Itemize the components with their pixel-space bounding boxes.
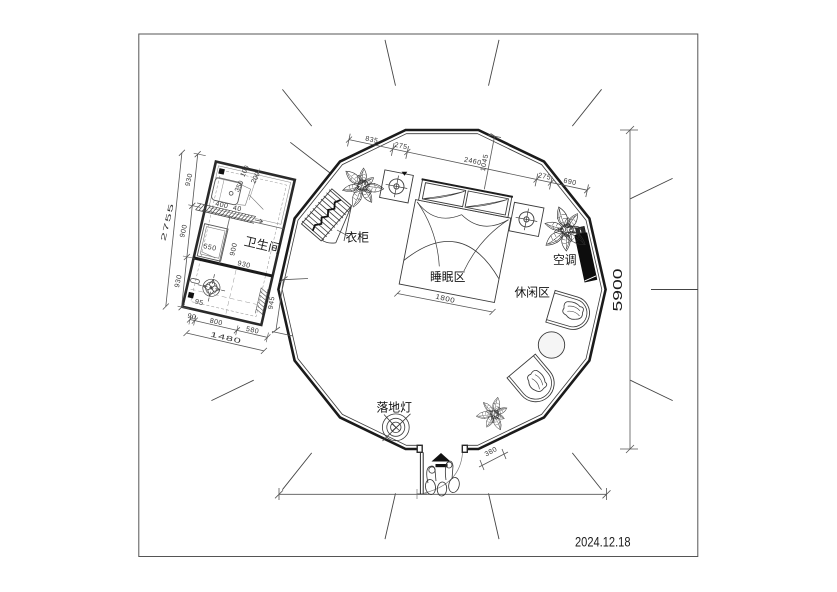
svg-text:落地灯: 落地灯 [377,401,413,415]
svg-text:睡眠区: 睡眠区 [430,270,466,284]
svg-text:5900: 5900 [611,268,625,311]
svg-text:休闲区: 休闲区 [515,286,551,300]
svg-text:衣柜: 衣柜 [346,231,370,245]
svg-text:空调: 空调 [553,253,577,267]
svg-text:2024.12.18: 2024.12.18 [575,535,631,550]
